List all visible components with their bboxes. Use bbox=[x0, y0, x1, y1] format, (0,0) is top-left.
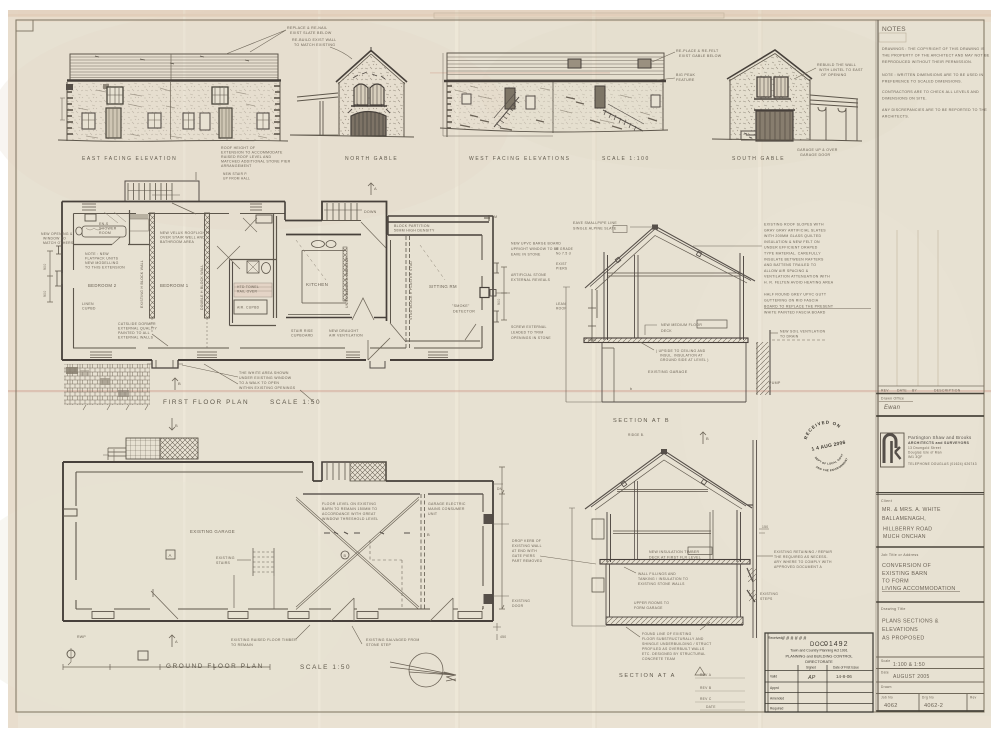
svg-text:EXISTING RETAINING / REPAIR: EXISTING RETAINING / REPAIR bbox=[774, 550, 833, 554]
svg-text:NEW INSULATION TIMBER: NEW INSULATION TIMBER bbox=[649, 550, 699, 554]
svg-text:FEATURE: FEATURE bbox=[676, 78, 695, 82]
svg-text:REPLACE & RE-NAIL: REPLACE & RE-NAIL bbox=[287, 26, 327, 30]
svg-text:BIG PEAK: BIG PEAK bbox=[676, 73, 695, 77]
svg-text:EN-S: EN-S bbox=[99, 222, 109, 226]
svg-text:GRAY GRAY ARTIFICIAL SLATES: GRAY GRAY ARTIFICIAL SLATES bbox=[764, 228, 826, 232]
svg-text:UPRIGHT WINDOW TO BE: UPRIGHT WINDOW TO BE bbox=[511, 247, 559, 251]
svg-text:INSULATION & NEW FELT ON: INSULATION & NEW FELT ON bbox=[764, 240, 820, 244]
svg-text:B: B bbox=[427, 532, 430, 537]
svg-text:REV C: REV C bbox=[700, 697, 712, 701]
svg-text:BARN TO REMAIN 150MM TO: BARN TO REMAIN 150MM TO bbox=[322, 507, 377, 511]
svg-text:TO MATCH EXISTING: TO MATCH EXISTING bbox=[294, 43, 335, 47]
svg-text:NEW MODELLING: NEW MODELLING bbox=[85, 261, 119, 265]
svg-text:GROUND SIDE AT LEVEL ): GROUND SIDE AT LEVEL ) bbox=[660, 358, 709, 362]
svg-text:A: A bbox=[374, 186, 377, 191]
svg-text:2: 2 bbox=[769, 386, 771, 390]
svg-text:DIRECTORATE: DIRECTORATE bbox=[805, 659, 833, 664]
svg-text:GUTTERING ON RIO FASCIA: GUTTERING ON RIO FASCIA bbox=[764, 299, 819, 303]
svg-text:EXISTING: EXISTING bbox=[512, 599, 530, 603]
svg-text:THE WHITE AREA SHOWN: THE WHITE AREA SHOWN bbox=[239, 371, 289, 375]
svg-text:AIR. CUPBD: AIR. CUPBD bbox=[237, 306, 260, 310]
svg-text:Job No: Job No bbox=[881, 696, 893, 700]
svg-text:MUCH ONCHAN: MUCH ONCHAN bbox=[883, 534, 926, 540]
svg-text:PIERS: PIERS bbox=[556, 267, 568, 271]
svg-text:1:100 & 1:50: 1:100 & 1:50 bbox=[893, 662, 925, 668]
svg-text:REBUILD THE WALL: REBUILD THE WALL bbox=[817, 63, 856, 67]
svg-text:FORM GARAGE: FORM GARAGE bbox=[634, 606, 663, 610]
svg-text:SCREW EXTERNAL: SCREW EXTERNAL bbox=[511, 325, 547, 329]
svg-text:( UPSIDE TO CEILING AND: ( UPSIDE TO CEILING AND bbox=[656, 349, 706, 353]
svg-text:REV A: REV A bbox=[700, 673, 712, 677]
svg-text:TO FORM: TO FORM bbox=[882, 579, 909, 585]
svg-text:14-8-06: 14-8-06 bbox=[836, 674, 852, 679]
svg-text:A: A bbox=[169, 553, 172, 558]
svg-text:Drawn: Drawn bbox=[881, 685, 892, 689]
svg-text:REPRODUCED WITHOUT THEIR PERMI: REPRODUCED WITHOUT THEIR PERMISSION. bbox=[882, 60, 972, 64]
svg-text:BEDROOM 2: BEDROOM 2 bbox=[88, 283, 117, 288]
svg-text:B: B bbox=[175, 423, 178, 428]
svg-text:ELEVATIONS: ELEVATIONS bbox=[882, 627, 918, 633]
svg-text:Drawing Title: Drawing Title bbox=[881, 607, 906, 611]
svg-text:BOARD TO REPLACE THE PRESE: BOARD TO REPLACE THE PRESENT bbox=[764, 305, 834, 309]
svg-text:Client: Client bbox=[881, 499, 892, 503]
svg-text:HTD TOWEL: HTD TOWEL bbox=[237, 285, 259, 289]
svg-text:EAVE IN STONE: EAVE IN STONE bbox=[511, 253, 541, 257]
svg-text:UP FROM HALL: UP FROM HALL bbox=[223, 177, 250, 181]
svg-text:SITTING RM: SITTING RM bbox=[429, 284, 457, 289]
svg-text:BALLAMENAGH,: BALLAMENAGH, bbox=[882, 516, 926, 522]
svg-text:UNDER EXISTING WINDOW: UNDER EXISTING WINDOW bbox=[239, 376, 292, 380]
svg-text:OF OPENING: OF OPENING bbox=[821, 73, 847, 77]
svg-text:EXISTING WALL: EXISTING WALL bbox=[512, 544, 542, 548]
svg-text:WITHIN EXISTING OPENINGS: WITHIN EXISTING OPENINGS bbox=[239, 386, 296, 390]
svg-text:PAINTED TO ALL: PAINTED TO ALL bbox=[118, 331, 150, 335]
svg-text:SCALE 1:50: SCALE 1:50 bbox=[300, 664, 351, 671]
svg-text:TO DRAIN: TO DRAIN bbox=[780, 335, 799, 339]
svg-text:SHOWER: SHOWER bbox=[99, 227, 117, 231]
svg-text:TELEPHONE DOUGLAS (01624) 6: TELEPHONE DOUGLAS (01624) 626743 bbox=[908, 462, 977, 466]
svg-text:50MM HIGH DENSITY: 50MM HIGH DENSITY bbox=[394, 229, 435, 233]
svg-text:UNIT: UNIT bbox=[428, 512, 438, 516]
svg-text:b: b bbox=[630, 387, 632, 391]
svg-text:LIVING ACCOMMODATION: LIVING ACCOMMODATION bbox=[882, 586, 956, 592]
svg-text:PART REMOVED: PART REMOVED bbox=[512, 559, 543, 563]
svg-text:Apprd: Apprd bbox=[770, 686, 779, 690]
svg-text:AIR VENTILATION: AIR VENTILATION bbox=[329, 334, 363, 338]
svg-text:CONTRACTORS ARE TO CHECK ALL L: CONTRACTORS ARE TO CHECK ALL LEVELS AND bbox=[882, 90, 979, 94]
svg-text:EXIST SLATE BELOW: EXIST SLATE BELOW bbox=[290, 31, 332, 35]
svg-text:PREFERENCE TO SCALED DIMENSION: PREFERENCE TO SCALED DIMENSIONS. bbox=[882, 80, 962, 84]
svg-text:Rev: Rev bbox=[970, 696, 977, 700]
svg-text:BY: BY bbox=[912, 389, 918, 393]
svg-text:ACCORDANCE WITH GREAT: ACCORDANCE WITH GREAT bbox=[322, 512, 376, 516]
svg-text:DOUBLE H BLOCK WALL: DOUBLE H BLOCK WALL bbox=[200, 264, 204, 310]
svg-text:ARCHITECTS and SURVEYORS: ARCHITECTS and SURVEYORS bbox=[908, 441, 970, 445]
svg-text:ALLOW AIR SPACING &: ALLOW AIR SPACING & bbox=[764, 269, 809, 273]
svg-text:Drawn Office: Drawn Office bbox=[881, 397, 904, 401]
svg-text:NEW DRAUGHT: NEW DRAUGHT bbox=[329, 329, 359, 333]
svg-text:DETECTOR: DETECTOR bbox=[453, 310, 475, 314]
svg-text:ARCHITECTS.: ARCHITECTS. bbox=[882, 115, 909, 119]
svg-text:CONCRETE TEAM: CONCRETE TEAM bbox=[642, 657, 675, 661]
svg-text:BEDROOM 1: BEDROOM 1 bbox=[160, 283, 189, 288]
svg-text:STEPS: STEPS bbox=[760, 597, 773, 601]
svg-text:EXIST: EXIST bbox=[556, 262, 567, 266]
svg-text:4062-2: 4062-2 bbox=[924, 703, 943, 709]
svg-text:DOWN: DOWN bbox=[364, 210, 377, 214]
svg-text:Received: Received bbox=[768, 636, 782, 640]
svg-text:BATHROOM AREA: BATHROOM AREA bbox=[160, 240, 195, 244]
svg-text:NOTE : NEW: NOTE : NEW bbox=[85, 252, 109, 256]
svg-text:MR. & MRS. A. WHITE: MR. & MRS. A. WHITE bbox=[882, 507, 941, 513]
svg-text:TYPE MATERIAL. CAREFULLY: TYPE MATERIAL. CAREFULLY bbox=[764, 252, 821, 256]
svg-text:OVER STAIR WELL AND: OVER STAIR WELL AND bbox=[160, 236, 205, 240]
svg-text:EXISTING GARAGE: EXISTING GARAGE bbox=[648, 370, 688, 374]
svg-text:IM1 3QF: IM1 3QF bbox=[908, 455, 923, 459]
svg-text:Job Title or Address: Job Title or Address bbox=[881, 553, 919, 557]
svg-text:Town and Country Planning Act: Town and Country Planning Act 1991 bbox=[790, 649, 847, 653]
svg-text:BLOCK PARTITION: BLOCK PARTITION bbox=[394, 224, 430, 228]
svg-text:ARRANGEMENT: ARRANGEMENT bbox=[221, 164, 252, 168]
svg-text:FLATPACK UNITS: FLATPACK UNITS bbox=[85, 257, 119, 261]
svg-text:TO REMAIN: TO REMAIN bbox=[231, 643, 253, 647]
svg-text:450: 450 bbox=[500, 635, 506, 639]
svg-text:No 7.5 d: No 7.5 d bbox=[556, 252, 571, 256]
svg-text:Date of First Issue: Date of First Issue bbox=[833, 666, 859, 670]
svg-text:NEW SOIL VENTILATION: NEW SOIL VENTILATION bbox=[780, 330, 826, 334]
svg-text:INSULATE BETWEEN RAFTERS: INSULATE BETWEEN RAFTERS bbox=[764, 257, 824, 261]
svg-text:SCALE 1:50: SCALE 1:50 bbox=[270, 399, 321, 406]
svg-text:REV: REV bbox=[881, 389, 889, 393]
svg-text:ARY WHERE TO COMPLY WITH: ARY WHERE TO COMPLY WITH bbox=[774, 560, 832, 564]
svg-text:PLANNING and BUILDING CONTROL: PLANNING and BUILDING CONTROL bbox=[785, 654, 853, 659]
svg-text:NEW MEDIUM FLOOR: NEW MEDIUM FLOOR bbox=[661, 323, 702, 327]
svg-text:WITH 200MM GLASS QUILTED: WITH 200MM GLASS QUILTED bbox=[764, 234, 821, 238]
svg-text:EXISTING ROOF SLOPES WITH: EXISTING ROOF SLOPES WITH bbox=[764, 223, 824, 227]
svg-text:SHINGLE UNDERBUILDING / STRUC: SHINGLE UNDERBUILDING / STRUCT bbox=[642, 642, 711, 646]
svg-text:SCALE 1:100: SCALE 1:100 bbox=[602, 156, 650, 162]
svg-text:CATSLIDE DORMER: CATSLIDE DORMER bbox=[118, 322, 156, 326]
svg-text:STAIRS: STAIRS bbox=[216, 561, 231, 565]
svg-text:PUMP: PUMP bbox=[769, 381, 781, 385]
svg-text:EXISTING SALVAGED FROM: EXISTING SALVAGED FROM bbox=[366, 638, 420, 642]
svg-text:PROFILED AS OVERBUILT WALLS: PROFILED AS OVERBUILT WALLS bbox=[642, 647, 705, 651]
svg-text:UPPER ROOMS TO: UPPER ROOMS TO bbox=[634, 601, 669, 605]
svg-text:SECTION AT B: SECTION AT B bbox=[613, 418, 670, 424]
svg-text:TO A WALK TO OPEN: TO A WALK TO OPEN bbox=[239, 381, 279, 385]
svg-text:LEAN: LEAN bbox=[556, 302, 566, 306]
svg-text:INSUL. INSULATION AT: INSUL. INSULATION AT bbox=[660, 354, 703, 358]
svg-text:Douglas Isle of Man: Douglas Isle of Man bbox=[908, 451, 942, 455]
svg-text:EXTENSION TO ACCOMMODATE: EXTENSION TO ACCOMMODATE bbox=[221, 151, 283, 155]
svg-text:GATE PIERS: GATE PIERS bbox=[512, 554, 536, 558]
svg-text:DRAWINGS : THE COPYRIGHT OF: DRAWINGS : THE COPYRIGHT OF THIS DRAWING… bbox=[882, 47, 985, 51]
svg-text:CONVERSION OF: CONVERSION OF bbox=[882, 563, 932, 569]
svg-text:Scale: Scale bbox=[881, 659, 890, 663]
svg-text:EXTERNAL QUALITY: EXTERNAL QUALITY bbox=[118, 327, 157, 331]
svg-text:EXISTING RAISED FLOOR TIMBE: EXISTING RAISED FLOOR TIMBER bbox=[231, 638, 297, 642]
svg-text:EAST FACING ELEVATION: EAST FACING ELEVATION bbox=[82, 156, 177, 162]
svg-text:ARTIFICIAL STONE: ARTIFICIAL STONE bbox=[511, 273, 547, 277]
svg-text:AUGUST 2005: AUGUST 2005 bbox=[893, 674, 930, 680]
svg-text:OPENINGS IN STONE: OPENINGS IN STONE bbox=[511, 336, 551, 340]
svg-text:CUPBOARD: CUPBOARD bbox=[291, 334, 313, 338]
svg-text:GARAGE ELECTRIC: GARAGE ELECTRIC bbox=[428, 502, 466, 506]
svg-text:R GRADE: R GRADE bbox=[556, 247, 574, 251]
svg-text:NEW OPENING &: NEW OPENING & bbox=[41, 232, 73, 236]
svg-text:EXISTING H BLOCK WALL: EXISTING H BLOCK WALL bbox=[140, 260, 144, 308]
svg-text:WALL FILLINGS AND: WALL FILLINGS AND bbox=[638, 572, 676, 576]
svg-text:EXISTING BARN: EXISTING BARN bbox=[882, 571, 928, 577]
svg-text:B: B bbox=[344, 554, 347, 558]
svg-text:SECTION AT A: SECTION AT A bbox=[619, 673, 676, 679]
svg-text:900: 900 bbox=[43, 263, 47, 270]
svg-text:NOTES: NOTES bbox=[882, 26, 906, 33]
svg-text:FLOOR SUBSTRUCTURALLY AND: FLOOR SUBSTRUCTURALLY AND bbox=[642, 637, 704, 641]
svg-text:Required: Required bbox=[770, 707, 784, 711]
svg-text:NOTE : WRITTEN DIMENSIONS AR: NOTE : WRITTEN DIMENSIONS ARE TO BE USED… bbox=[882, 73, 984, 77]
svg-text:DESCRIPTION: DESCRIPTION bbox=[934, 389, 961, 393]
svg-text:DN: DN bbox=[497, 487, 503, 491]
svg-text:EXTERNAL WALLS: EXTERNAL WALLS bbox=[118, 336, 154, 340]
svg-text:NEW STAIR P.: NEW STAIR P. bbox=[223, 172, 248, 176]
svg-text:FLOOR LEVEL ON EXISTING: FLOOR LEVEL ON EXISTING bbox=[322, 502, 376, 506]
svg-text:DATE: DATE bbox=[897, 389, 907, 393]
svg-text:SOUTH GABLE: SOUTH GABLE bbox=[732, 156, 785, 162]
svg-text:EXISTING: EXISTING bbox=[216, 556, 235, 560]
svg-text:ANY DISCREPANCIES ARE TO BE RE: ANY DISCREPANCIES ARE TO BE REPORTED TO … bbox=[882, 108, 987, 112]
svg-text:STUD BLOCK H PLASTER STUD: STUD BLOCK H PLASTER STUD bbox=[409, 261, 413, 320]
svg-text:Signed: Signed bbox=[806, 666, 816, 670]
svg-text:NORTH GABLE: NORTH GABLE bbox=[345, 156, 398, 162]
svg-text:AND BATTENS TRAILED TO: AND BATTENS TRAILED TO bbox=[764, 263, 816, 267]
svg-text:VENTILATION ATTENUATION WITH: VENTILATION ATTENUATION WITH bbox=[764, 275, 830, 279]
svg-text:THE REQUIRED AS NECESS-: THE REQUIRED AS NECESS- bbox=[774, 555, 828, 559]
svg-text:UNITS BELOW H WORKTOP: UNITS BELOW H WORKTOP bbox=[345, 256, 349, 308]
svg-text:13 Drumgold Street: 13 Drumgold Street bbox=[908, 446, 941, 450]
svg-text:RAISED ROOF LEVEL AND: RAISED ROOF LEVEL AND bbox=[221, 155, 271, 159]
svg-text:MATCH OTHERS: MATCH OTHERS bbox=[43, 241, 74, 245]
svg-text:DATE: DATE bbox=[706, 705, 716, 709]
svg-text:HILLBERRY ROAD: HILLBERRY ROAD bbox=[883, 527, 932, 533]
svg-text:UNDER EFFICIENT DRAPED: UNDER EFFICIENT DRAPED bbox=[764, 246, 818, 250]
svg-text:A: A bbox=[175, 639, 178, 644]
svg-text:SINGLE ALPINE SLATE: SINGLE ALPINE SLATE bbox=[573, 227, 617, 231]
svg-text:LEADED TO TRIM: LEADED TO TRIM bbox=[511, 331, 543, 335]
svg-text:AS PROPOSED: AS PROPOSED bbox=[882, 636, 925, 642]
svg-text:"SMOKE": "SMOKE" bbox=[452, 304, 470, 308]
svg-text:EXISTING STONE WALLS: EXISTING STONE WALLS bbox=[638, 582, 685, 586]
svg-text:01492: 01492 bbox=[824, 641, 848, 648]
svg-text:WINDOW TO: WINDOW TO bbox=[43, 237, 66, 241]
svg-text:WITH LINTEL TO EAST: WITH LINTEL TO EAST bbox=[819, 68, 864, 72]
svg-text:WEST FACING ELEVATIONS: WEST FACING ELEVATIONS bbox=[469, 156, 571, 162]
svg-text:GROUND FLOOR PLAN: GROUND FLOOR PLAN bbox=[166, 663, 264, 670]
svg-text:DROP KERB OF: DROP KERB OF bbox=[512, 539, 541, 543]
svg-text:AT END WITH: AT END WITH bbox=[512, 549, 537, 553]
svg-text:THE PROPERTY OF THE ARCHITECT: THE PROPERTY OF THE ARCHITECT AND MAY NO… bbox=[882, 54, 990, 58]
svg-text:APPROVED DOCUMENT A: APPROVED DOCUMENT A bbox=[774, 565, 822, 569]
svg-text:900: 900 bbox=[43, 290, 47, 297]
svg-text:CUPBD: CUPBD bbox=[82, 307, 96, 311]
svg-text:NEW UPVC BARGE BOARD: NEW UPVC BARGE BOARD bbox=[511, 242, 561, 246]
svg-text:GARAGE DOOR: GARAGE DOOR bbox=[800, 153, 831, 157]
svg-text:B: B bbox=[706, 436, 709, 441]
svg-text:KITCHEN: KITCHEN bbox=[306, 282, 328, 287]
svg-text:ROOF: ROOF bbox=[556, 307, 567, 311]
svg-text:ETC. DESIGNED BY STRUCTURAL: ETC. DESIGNED BY STRUCTURAL bbox=[642, 652, 706, 656]
svg-text:EXISTING: EXISTING bbox=[760, 592, 778, 596]
svg-text:B: B bbox=[178, 381, 181, 386]
svg-text:AP: AP bbox=[807, 675, 816, 681]
svg-text:REV B: REV B bbox=[700, 686, 712, 690]
svg-text:GARAGE UP & OVER: GARAGE UP & OVER bbox=[797, 148, 838, 152]
svg-text:EXIST GABLE BELOW: EXIST GABLE BELOW bbox=[679, 54, 722, 58]
svg-text:MAINS CONSUMER: MAINS CONSUMER bbox=[428, 507, 465, 511]
svg-text:DOOR: DOOR bbox=[512, 604, 524, 608]
svg-text:EXISTING GARAGE: EXISTING GARAGE bbox=[190, 529, 235, 534]
svg-text:######: ###### bbox=[782, 636, 808, 642]
svg-text:Date: Date bbox=[881, 671, 889, 675]
svg-text:Drg No: Drg No bbox=[922, 696, 934, 700]
svg-text:RIDGE B.: RIDGE B. bbox=[628, 433, 644, 437]
svg-text:NEW VELUX ROOFLIGHTS: NEW VELUX ROOFLIGHTS bbox=[160, 231, 211, 235]
svg-text:3M: 3M bbox=[492, 215, 497, 219]
svg-text:ROOF HEIGHT OF: ROOF HEIGHT OF bbox=[221, 146, 255, 150]
svg-text:PLANS SECTIONS &: PLANS SECTIONS & bbox=[882, 619, 939, 625]
svg-text:FOUND LINE OF EXISTING: FOUND LINE OF EXISTING bbox=[642, 632, 692, 636]
svg-text:RE-PLACE & RE-FELT: RE-PLACE & RE-FELT bbox=[676, 49, 719, 53]
svg-text:150: 150 bbox=[762, 525, 768, 529]
svg-text:Amended: Amended bbox=[770, 697, 784, 701]
svg-text:WHITE PAINTED FASCIA BOARD: WHITE PAINTED FASCIA BOARD bbox=[764, 311, 826, 315]
svg-text:HALF ROUND GREY UPVC GUTT: HALF ROUND GREY UPVC GUTT bbox=[764, 293, 827, 297]
svg-text:DECK AT FIRST FLR LEVEL: DECK AT FIRST FLR LEVEL bbox=[649, 556, 701, 560]
svg-text:900: 900 bbox=[497, 298, 501, 305]
svg-text:RAIL OVER: RAIL OVER bbox=[237, 290, 257, 294]
svg-text:RE-BUILD EXIST WALL: RE-BUILD EXIST WALL bbox=[292, 38, 336, 42]
svg-text:Ewan: Ewan bbox=[884, 405, 901, 411]
svg-text:MATCHED ADDITIONAL STONE PI: MATCHED ADDITIONAL STONE PIER bbox=[221, 160, 291, 164]
svg-text:Partington Shaw and Brooks: Partington Shaw and Brooks bbox=[908, 435, 972, 440]
svg-text:4062: 4062 bbox=[884, 703, 898, 709]
svg-text:EAVE SMALLPIPE LINE: EAVE SMALLPIPE LINE bbox=[573, 221, 617, 225]
svg-text:RWP: RWP bbox=[77, 635, 86, 639]
svg-text:TANKING / INSULATION TO: TANKING / INSULATION TO bbox=[638, 577, 688, 581]
svg-text:LINEN: LINEN bbox=[82, 302, 94, 306]
svg-text:WINDOW THRESHOLD LEVEL: WINDOW THRESHOLD LEVEL bbox=[322, 517, 378, 521]
svg-text:ROOM: ROOM bbox=[99, 231, 111, 235]
svg-text:Valid: Valid bbox=[770, 675, 777, 679]
svg-text:DIMENSIONS ON SITE.: DIMENSIONS ON SITE. bbox=[882, 97, 927, 101]
svg-text:H. R. FELTEN AVOID HEATING: H. R. FELTEN AVOID HEATING AREA bbox=[764, 281, 834, 285]
svg-text:STAIR RISE: STAIR RISE bbox=[291, 329, 314, 333]
svg-text:STONE STEP: STONE STEP bbox=[366, 643, 391, 647]
svg-text:EXTERNAL REVEALS: EXTERNAL REVEALS bbox=[511, 278, 551, 282]
svg-text:FIRST FLOOR PLAN: FIRST FLOOR PLAN bbox=[163, 399, 249, 406]
svg-text:TO THIS EXTENSION: TO THIS EXTENSION bbox=[85, 266, 125, 270]
svg-text:DECK: DECK bbox=[661, 329, 672, 333]
